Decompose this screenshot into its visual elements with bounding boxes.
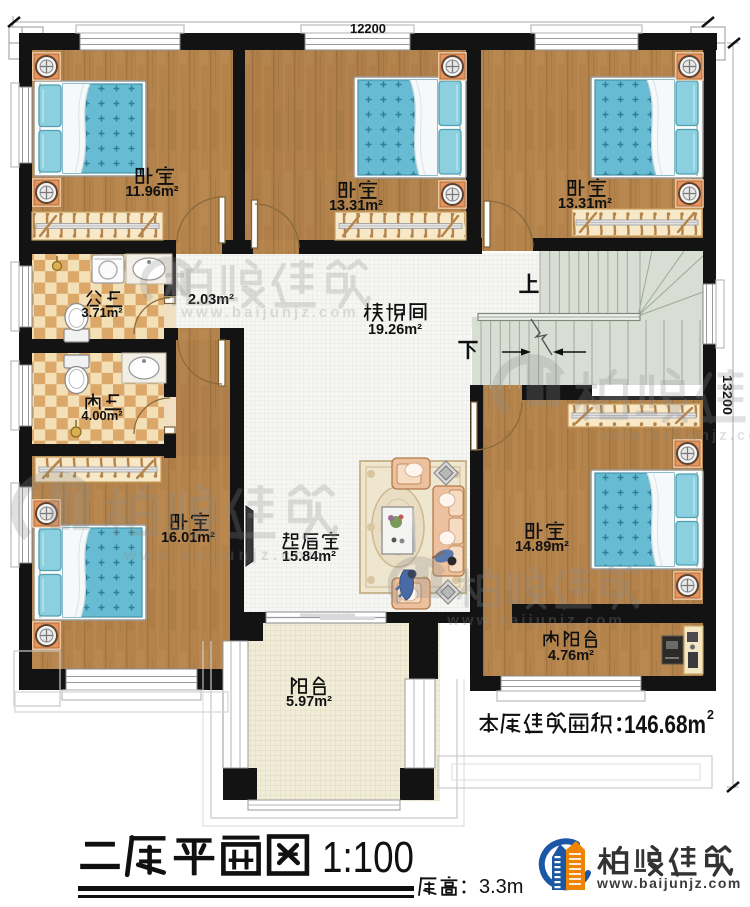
svg-text:：3.3m: ：3.3m bbox=[459, 876, 523, 898]
svg-text:www.baijunjz.com: www.baijunjz.com bbox=[598, 427, 750, 444]
svg-text:www.baijunjz.com: www.baijunjz.com bbox=[123, 547, 326, 564]
svg-text:4.76m²: 4.76m² bbox=[548, 648, 594, 664]
svg-text:13.31m²: 13.31m² bbox=[558, 196, 612, 212]
svg-text:11.96m²: 11.96m² bbox=[125, 184, 178, 200]
svg-text:3.71m²: 3.71m² bbox=[81, 305, 123, 320]
svg-text:4.00m²: 4.00m² bbox=[81, 408, 123, 423]
svg-text:www.baijunjz.com: www.baijunjz.com bbox=[180, 304, 358, 321]
svg-text:www.baijunjz.com: www.baijunjz.com bbox=[596, 875, 742, 891]
svg-text:13.31m²: 13.31m² bbox=[329, 198, 383, 214]
svg-text:14.89m²: 14.89m² bbox=[515, 539, 569, 555]
svg-text:19.26m²: 19.26m² bbox=[368, 322, 422, 338]
svg-text:www.baijunjz.com: www.baijunjz.com bbox=[446, 612, 624, 629]
svg-text:5.97m²: 5.97m² bbox=[286, 694, 332, 710]
svg-text:12200: 12200 bbox=[350, 21, 386, 36]
svg-text:2: 2 bbox=[707, 708, 714, 722]
svg-text:1:100: 1:100 bbox=[322, 833, 414, 882]
svg-text:146.68m: 146.68m bbox=[624, 711, 706, 739]
